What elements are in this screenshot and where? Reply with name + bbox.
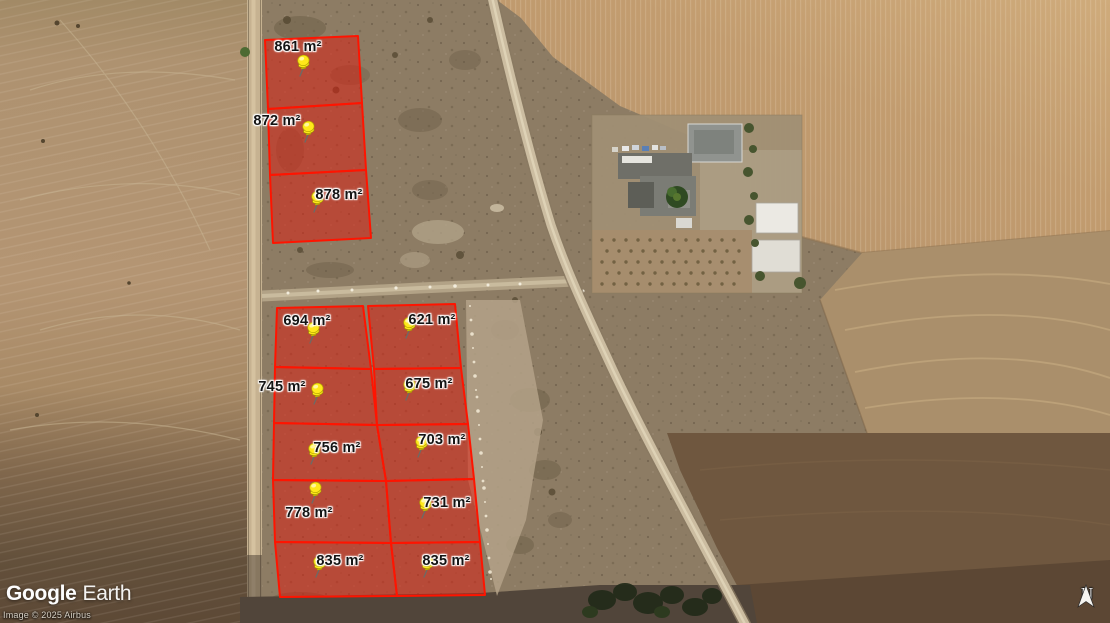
parcel-878-area-label[interactable]: 878 m² <box>315 187 362 203</box>
parcel-835-left-polygon[interactable] <box>275 542 397 597</box>
parcel-overlay-layer <box>0 0 1110 623</box>
parcel-835-right-area-label[interactable]: 835 m² <box>422 553 469 569</box>
parcel-745-area-label[interactable]: 745 m² <box>258 379 305 395</box>
parcel-835-right-polygon[interactable] <box>391 542 485 596</box>
north-arrow-icon <box>1075 584 1097 608</box>
parcel-731-area-label[interactable]: 731 m² <box>423 495 470 511</box>
parcel-694-area-label[interactable]: 694 m² <box>283 313 330 329</box>
parcel-756-area-label[interactable]: 756 m² <box>313 440 360 456</box>
imagery-attribution: Image © 2025 Airbus <box>3 610 91 620</box>
parcel-703-area-label[interactable]: 703 m² <box>418 432 465 448</box>
parcel-731-polygon[interactable] <box>386 479 480 543</box>
parcel-861-area-label[interactable]: 861 m² <box>274 39 321 55</box>
google-earth-canvas[interactable]: 861 m²872 m²878 m²694 m²621 m²745 m²675 … <box>0 0 1110 623</box>
parcel-872-area-label[interactable]: 872 m² <box>253 113 300 129</box>
parcel-675-area-label[interactable]: 675 m² <box>405 376 452 392</box>
logo-earth: Earth <box>83 582 132 605</box>
parcel-745-polygon[interactable] <box>274 367 377 425</box>
north-indicator: N <box>1075 584 1099 602</box>
logo-google: Google <box>6 582 77 605</box>
google-earth-logo: GoogleEarth <box>6 582 131 606</box>
parcel-621-area-label[interactable]: 621 m² <box>408 312 455 328</box>
parcel-878-polygon[interactable] <box>270 170 371 243</box>
parcel-835-left-area-label[interactable]: 835 m² <box>316 553 363 569</box>
parcel-778-area-label[interactable]: 778 m² <box>285 505 332 521</box>
